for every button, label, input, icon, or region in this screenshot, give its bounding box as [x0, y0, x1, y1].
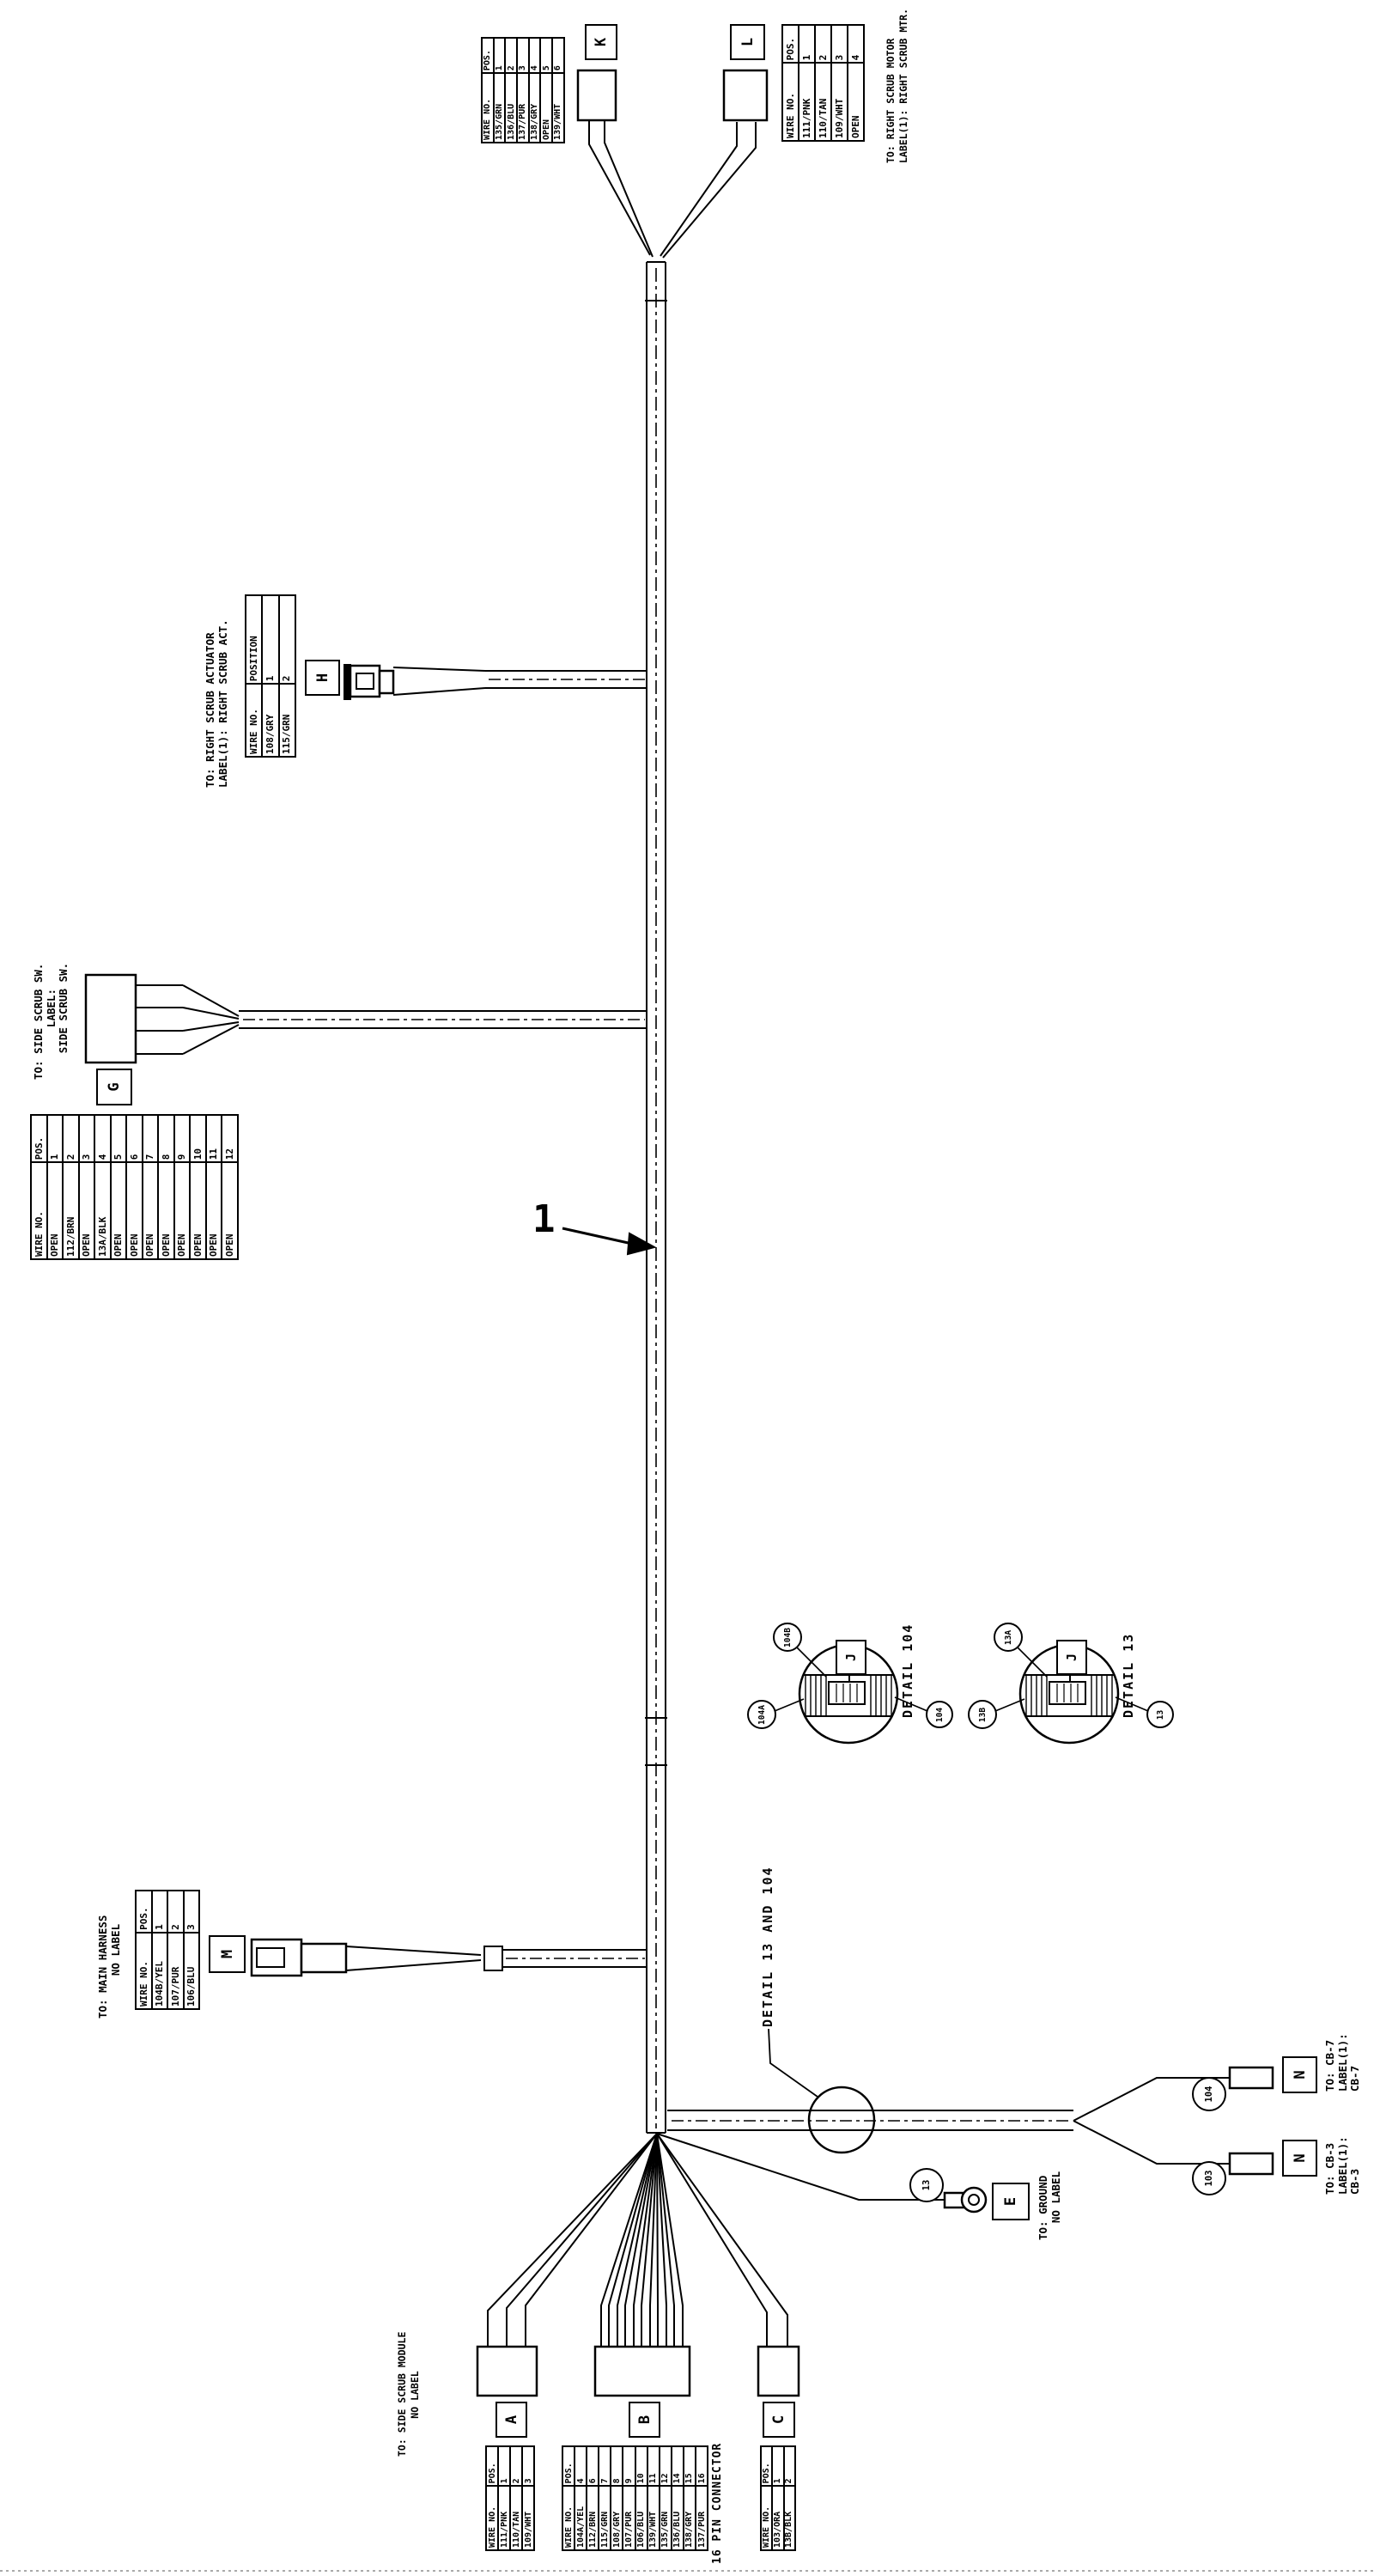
table-cell: 115/GRN	[279, 684, 295, 757]
label-line: TO: CB-3	[1324, 2100, 1337, 2195]
wire-table: WIRE NO.POS.111/PNK1110/TAN2109/WHT3	[485, 2445, 535, 2551]
table-header-cell: WIRE NO.	[482, 73, 494, 143]
table-cell: 12	[660, 2446, 672, 2486]
connector-letter: E	[1002, 2197, 1019, 2206]
table-cell: 2	[167, 1891, 184, 1933]
connector-label-H: H	[305, 660, 340, 696]
table-cell: 2	[784, 2446, 795, 2486]
table-cell: 135/GRN	[660, 2486, 672, 2550]
table-cell: 2	[279, 595, 295, 684]
label-right-scrub-actuator: TO: RIGHT SCRUB ACTUATOR LABEL(1): RIGHT…	[204, 569, 229, 788]
wire-table-L: WIRE NO.POS.111/PNK1110/TAN2109/WHT3OPEN…	[781, 24, 865, 142]
table-cell: 10	[190, 1115, 206, 1162]
table-cell: 3	[184, 1891, 200, 1933]
table-cell: OPEN	[174, 1162, 191, 1259]
table-cell: 139/WHT	[552, 73, 564, 143]
table-header-cell: POS.	[136, 1891, 152, 1933]
table-cell: 3	[79, 1115, 95, 1162]
balloon-104-right: 104	[927, 1702, 952, 1728]
table-cell: 109/WHT	[522, 2486, 534, 2550]
table-cell: 14	[672, 2446, 684, 2486]
connector-letter: M	[219, 1950, 236, 1958]
table-cell: 111/PNK	[498, 2486, 510, 2550]
table-cell: 137/PUR	[696, 2486, 708, 2550]
table-header-cell: WIRE NO.	[761, 2486, 772, 2550]
table-cell: OPEN	[79, 1162, 95, 1259]
table-cell: 136/BLU	[505, 73, 517, 143]
wire-table: WIRE NO.POS.103/ORA113B/BLK2	[760, 2445, 796, 2551]
table-header-cell: POS.	[31, 1115, 47, 1162]
table-cell: 6	[587, 2446, 599, 2486]
table-cell: 8	[611, 2446, 623, 2486]
table-cell: 110/TAN	[815, 63, 831, 141]
table-cell: OPEN	[111, 1162, 127, 1259]
table-cell: 1	[799, 25, 815, 63]
table-header-cell: POS.	[482, 38, 494, 73]
balloon-13A: 13A	[995, 1623, 1021, 1652]
label-line: LABEL(1): RIGHT SCRUB MTR.	[897, 13, 910, 163]
table-cell: OPEN	[143, 1162, 159, 1259]
table-cell: 13A/BLK	[94, 1162, 111, 1259]
wire-table-H: WIRE NO.POSITION108/GRY1115/GRN2	[245, 594, 296, 758]
table-cell: 4	[529, 38, 541, 73]
table-header-cell: POS.	[761, 2446, 772, 2486]
label-line: LABEL:	[46, 936, 58, 1080]
table-cell: 3	[831, 25, 848, 63]
table-cell: 4	[94, 1115, 111, 1162]
table-cell: 6	[126, 1115, 143, 1162]
connector-letter: C	[770, 2415, 787, 2424]
table-cell: 106/BLU	[635, 2486, 647, 2550]
wire-table-G: WIRE NO.POS.OPEN1112/BRN2OPEN313A/BLK4OP…	[30, 1114, 239, 1260]
wire-balloon-103: 103	[1193, 2162, 1225, 2195]
connector-label-A: A	[495, 2402, 527, 2438]
table-cell: 16	[696, 2446, 708, 2486]
wire-table: WIRE NO.POS.104B/YEL1107/PUR2106/BLU3	[135, 1890, 200, 2010]
connector-label-L: L	[730, 24, 765, 60]
connector-G-branch	[86, 975, 647, 1063]
table-header-cell: WIRE NO.	[246, 684, 262, 757]
table-header-cell: WIRE NO.	[31, 1162, 47, 1259]
wire-balloon-13: 13	[910, 2169, 943, 2201]
cb-branch	[667, 2067, 1273, 2195]
table-header-cell: WIRE NO.	[782, 63, 799, 141]
table-cell: 1	[494, 38, 506, 73]
table-header-cell: WIRE NO.	[562, 2486, 575, 2550]
table-cell: 3	[522, 2446, 534, 2486]
label-line: NO LABEL	[1050, 2154, 1063, 2240]
wire-table: WIRE NO.POSITION108/GRY1115/GRN2	[245, 594, 296, 758]
wire-table-K: WIRE NO.POS.135/GRN1136/BLU2137/PUR3138/…	[481, 37, 565, 143]
label-line: LABEL(1):	[1337, 2100, 1350, 2195]
table-cell: OPEN	[126, 1162, 143, 1259]
pin16-connector-note: 16 PIN CONNECTOR	[711, 2433, 728, 2564]
table-cell: 136/BLU	[672, 2486, 684, 2550]
connector-label-G: G	[96, 1069, 132, 1105]
wire-table: WIRE NO.POS.OPEN1112/BRN2OPEN313A/BLK4OP…	[30, 1114, 239, 1260]
table-cell: 7	[599, 2446, 611, 2486]
table-cell: 110/TAN	[510, 2486, 522, 2550]
table-cell: OPEN	[206, 1162, 222, 1259]
connector-label-J-detail13: J	[1056, 1640, 1087, 1675]
table-cell: 107/PUR	[623, 2486, 635, 2550]
table-header-cell: POS.	[782, 25, 799, 63]
table-cell: 107/PUR	[167, 1933, 184, 2009]
connector-letter: B	[636, 2415, 654, 2424]
table-cell: OPEN	[190, 1162, 206, 1259]
table-cell: 108/GRY	[262, 684, 278, 757]
connector-H-branch	[344, 665, 647, 699]
wire-table-C: WIRE NO.POS.103/ORA113B/BLK2	[760, 2445, 796, 2551]
table-cell: 5	[540, 38, 552, 73]
table-header-cell: POS.	[562, 2446, 575, 2486]
table-cell: 11	[206, 1115, 222, 1162]
connector-label-N-cb7: N	[1282, 2056, 1317, 2093]
table-cell: 3	[517, 38, 529, 73]
table-cell: 103/ORA	[772, 2486, 783, 2550]
wire-table: WIRE NO.POS.111/PNK1110/TAN2109/WHT3OPEN…	[781, 24, 865, 142]
table-cell: 137/PUR	[517, 73, 529, 143]
table-cell: 104A/YEL	[575, 2486, 587, 2550]
wire-table: WIRE NO.POS.135/GRN1136/BLU2137/PUR3138/…	[481, 37, 565, 143]
connector-letter: K	[593, 38, 610, 46]
label-main-harness: TO: MAIN HARNESS NO LABEL	[97, 1881, 122, 2019]
detail-104-title: DETAIL 104	[900, 1599, 919, 1718]
connector-letter: J	[1064, 1653, 1079, 1661]
table-cell: OPEN	[222, 1162, 238, 1259]
wire-table-B: WIRE NO.POS.104A/YEL4112/BRN6115/GRN7108…	[562, 2445, 708, 2551]
connector-label-K: K	[585, 24, 617, 60]
table-cell: 9	[623, 2446, 635, 2486]
diagram-linework	[0, 0, 1374, 2576]
label-line: LABEL(1): RIGHT SCRUB ACT.	[217, 569, 230, 788]
connector-label-C: C	[763, 2402, 795, 2438]
table-header-cell: POS.	[486, 2446, 498, 2486]
connector-label-B: B	[629, 2402, 660, 2438]
balloon-104B: 104B	[775, 1623, 800, 1652]
table-cell: 115/GRN	[599, 2486, 611, 2550]
table-cell: OPEN	[848, 63, 864, 141]
label-cb3: TO: CB-3 LABEL(1): CB-3	[1324, 2100, 1361, 2195]
table-cell: 10	[635, 2446, 647, 2486]
label-line: NO LABEL	[409, 2333, 422, 2457]
detail-callout	[769, 2029, 874, 2153]
balloon-13B: 13B	[970, 1701, 995, 1729]
connector-letter: J	[843, 1653, 859, 1661]
label-line: TO: GROUND	[1037, 2154, 1050, 2240]
label-line: TO: RIGHT SCRUB MOTOR	[885, 13, 897, 163]
balloon-13-right: 13	[1147, 1702, 1173, 1728]
wire-table-A: WIRE NO.POS.111/PNK1110/TAN2109/WHT3	[485, 2445, 535, 2551]
label-line: CB-3	[1349, 2100, 1362, 2195]
table-cell: 109/WHT	[831, 63, 848, 141]
main-harness-trunk	[645, 262, 667, 2133]
table-cell: 112/BRN	[63, 1162, 79, 1259]
table-cell: 2	[815, 25, 831, 63]
connector-letter: L	[739, 38, 757, 46]
connector-letter: A	[503, 2415, 520, 2424]
label-line: TO: RIGHT SCRUB ACTUATOR	[204, 569, 217, 788]
table-cell: OPEN	[47, 1162, 64, 1259]
table-cell: 139/WHT	[647, 2486, 660, 2550]
label-line: TO: CB-7	[1324, 2019, 1337, 2092]
detail-13-and-104-callout-text: DETAIL 13 AND 104	[760, 1838, 779, 2027]
wire-table-M: WIRE NO.POS.104B/YEL1107/PUR2106/BLU3	[135, 1890, 200, 2010]
label-line: CB-7	[1349, 2019, 1362, 2092]
table-cell: 2	[510, 2446, 522, 2486]
table-cell: OPEN	[158, 1162, 174, 1259]
label-side-scrub-sw: TO: SIDE SCRUB SW. LABEL: SIDE SCRUB SW.	[33, 936, 76, 1080]
label-line: LABEL(1):	[1337, 2019, 1350, 2092]
table-cell: 135/GRN	[494, 73, 506, 143]
table-cell: 2	[505, 38, 517, 73]
table-cell: 4	[848, 25, 864, 63]
table-cell: 4	[575, 2446, 587, 2486]
label-cb7: TO: CB-7 LABEL(1): CB-7	[1324, 2019, 1361, 2092]
connector-letter: G	[106, 1082, 123, 1091]
table-cell: 5	[111, 1115, 127, 1162]
table-cell: 1	[152, 1891, 168, 1933]
table-cell: 1	[262, 595, 278, 684]
connector-letter: N	[1292, 2153, 1309, 2162]
table-cell: 138/GRY	[684, 2486, 696, 2550]
table-cell: 15	[684, 2446, 696, 2486]
abc-fanout	[477, 2134, 799, 2396]
table-cell: 8	[158, 1115, 174, 1162]
table-cell: 2	[63, 1115, 79, 1162]
table-header-cell: WIRE NO.	[486, 2486, 498, 2550]
table-cell: 104B/YEL	[152, 1933, 168, 2009]
table-cell: 106/BLU	[184, 1933, 200, 2009]
balloon-104A: 104A	[749, 1701, 775, 1729]
label-side-scrub-module: TO: SIDE SCRUB MODULE NO LABEL	[396, 2333, 420, 2457]
table-cell: 12	[222, 1115, 238, 1162]
table-cell: 112/BRN	[587, 2486, 599, 2550]
table-cell: 108/GRY	[611, 2486, 623, 2550]
connector-label-N-cb3: N	[1282, 2140, 1317, 2177]
connector-K-L-wires	[578, 70, 767, 258]
table-cell: 138/GRY	[529, 73, 541, 143]
table-cell: 6	[552, 38, 564, 73]
label-line: TO: SIDE SCRUB MODULE	[396, 2333, 409, 2457]
table-cell: 7	[143, 1115, 159, 1162]
item-1-arrow	[562, 1228, 654, 1254]
table-cell: 1	[772, 2446, 783, 2486]
table-cell: 13B/BLK	[784, 2486, 795, 2550]
label-line: NO LABEL	[110, 1881, 123, 2019]
table-cell: 1	[498, 2446, 510, 2486]
label-line: TO: SIDE SCRUB SW.	[33, 936, 46, 1080]
table-header-cell: WIRE NO.	[136, 1933, 152, 2009]
connector-label-M: M	[209, 1935, 246, 1973]
item-number-1: 1	[532, 1201, 556, 1239]
harness-drawing-page: WIRE NO.POS.135/GRN1136/BLU2137/PUR3138/…	[0, 0, 1374, 2576]
table-cell: OPEN	[540, 73, 552, 143]
label-line: SIDE SCRUB SW.	[58, 936, 70, 1080]
table-header-cell: POSITION	[246, 595, 262, 684]
connector-M-branch	[252, 1940, 647, 1976]
detail-13-title: DETAIL 13	[1121, 1611, 1140, 1718]
table-cell: 1	[47, 1115, 64, 1162]
connector-label-E: E	[992, 2183, 1030, 2220]
label-ground: TO: GROUND NO LABEL	[1037, 2154, 1063, 2240]
table-cell: 11	[647, 2446, 660, 2486]
label-line: TO: MAIN HARNESS	[97, 1881, 110, 2019]
connector-letter: N	[1292, 2070, 1309, 2079]
label-right-scrub-motor: TO: RIGHT SCRUB MOTOR LABEL(1): RIGHT SC…	[885, 13, 923, 163]
table-cell: 111/PNK	[799, 63, 815, 141]
table-cell: 9	[174, 1115, 191, 1162]
connector-label-J-detail104: J	[836, 1640, 866, 1675]
connector-letter: H	[314, 673, 331, 682]
wire-balloon-104: 104	[1193, 2078, 1225, 2110]
wire-table: WIRE NO.POS.104A/YEL4112/BRN6115/GRN7108…	[562, 2445, 708, 2551]
